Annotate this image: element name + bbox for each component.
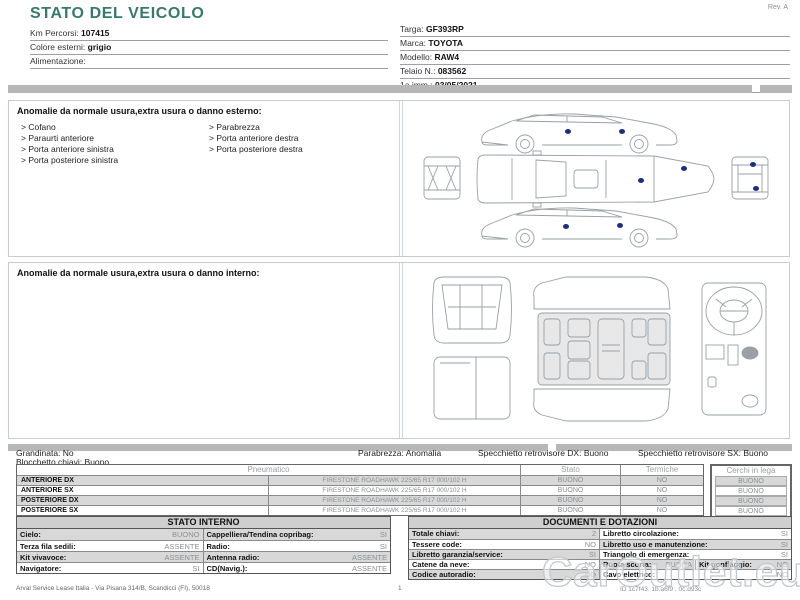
item-label: Libretto circolazione: xyxy=(603,529,679,539)
item-value: SI xyxy=(61,563,199,573)
documenti-title: DOCUMENTI E DOTAZIONI xyxy=(409,517,791,529)
tyre-position: POSTERIORE SX xyxy=(17,506,269,515)
cerchi-value: BUONO xyxy=(715,496,787,506)
item-label: Codice autoradio: xyxy=(412,570,476,579)
tyre-spec: FIRESTONE ROADHAWK 225/65 R17 000/102 H xyxy=(269,476,521,485)
item-label: Navigatore: xyxy=(20,563,61,573)
field-value: RAW4 xyxy=(435,52,460,62)
stato-interno-table: STATO INTERNO Cielo:BUONO Cappelliera/Te… xyxy=(16,516,391,574)
summary-specchietto-dx: Specchietto retrovisore DX: Buono xyxy=(478,448,608,458)
tyre-termiche: NO xyxy=(621,506,703,515)
field-label: Modello: xyxy=(400,52,432,62)
item-value: ASSENTE xyxy=(259,552,387,562)
item-label: Radio: xyxy=(207,541,230,551)
tyre-position: ANTERIORE DX xyxy=(17,476,269,485)
field-targa: Targa: GF393RP xyxy=(400,23,790,37)
footer-page-number: 1 xyxy=(398,585,402,592)
item-value: SI xyxy=(313,529,387,540)
item-value: 2 xyxy=(459,529,596,539)
tyres-table-header: Pneumatico Stato Termiche xyxy=(17,465,703,475)
summary-value: Buono xyxy=(743,448,768,458)
damage-dot xyxy=(565,129,571,134)
field-label: Telaio N.: xyxy=(400,66,435,76)
header-fields-left: Km Percorsi: 107415 Colore esterni: grig… xyxy=(30,27,388,69)
table-row: Terza fila sedili:ASSENTE Radio:SI xyxy=(17,540,390,551)
tyre-termiche: NO xyxy=(621,486,703,495)
item-value: BUONO xyxy=(41,529,200,540)
anomaly-item: Cofano xyxy=(21,122,118,133)
item-label: Totale chiavi: xyxy=(412,529,459,539)
alloy-wheels-box: Cerchi in lega BUONO BUONO BUONO BUONO xyxy=(710,464,792,518)
anomaly-item: Porta posteriore destra xyxy=(209,144,303,155)
summary-value: Anomalia xyxy=(406,448,441,458)
col-header-cerchi: Cerchi in lega xyxy=(712,466,790,476)
tyre-stato: BUONO xyxy=(521,496,621,505)
divider-bar xyxy=(8,444,548,451)
tyre-stato: BUONO xyxy=(521,506,621,515)
tyre-position: POSTERIORE DX xyxy=(17,496,269,505)
item-label: Kit vivavoce: xyxy=(20,552,66,562)
tyre-position: ANTERIORE SX xyxy=(17,486,269,495)
anomaly-item: Porta anteriore sinistra xyxy=(21,144,118,155)
item-label: Libretto garanzia/service: xyxy=(412,550,503,559)
damage-dot xyxy=(750,162,756,167)
item-label: Catene da neve: xyxy=(412,560,470,569)
table-row: POSTERIORE DX FIRESTONE ROADHAWK 225/65 … xyxy=(17,495,703,505)
cerchi-value: BUONO xyxy=(715,506,787,516)
stato-interno-title: STATO INTERNO xyxy=(17,517,390,529)
exterior-car-diagram xyxy=(416,104,776,254)
field-marca: Marca: TOYOTA xyxy=(400,37,790,51)
field-telaio: Telaio N.: 083562 xyxy=(400,65,790,79)
summary-specchietto-sx: Specchietto retrovisore SX: Buono xyxy=(638,448,768,458)
divider-bar xyxy=(8,85,752,93)
field-value: TOYOTA xyxy=(428,38,463,48)
field-value: grigio xyxy=(88,42,112,52)
item-value: ASSENTE xyxy=(66,552,199,562)
damage-dot xyxy=(619,129,625,134)
field-km-percorsi: Km Percorsi: 107415 xyxy=(30,27,388,41)
table-row: ANTERIORE SX FIRESTONE ROADHAWK 225/65 R… xyxy=(17,485,703,495)
vehicle-status-report: STATO DEL VEICOLO Rev. A Km Percorsi: 10… xyxy=(0,0,800,600)
tyres-table: Pneumatico Stato Termiche ANTERIORE DX F… xyxy=(16,464,704,516)
field-value: 083562 xyxy=(438,66,466,76)
interior-diagram-pane xyxy=(402,263,789,438)
item-label: Tessere code: xyxy=(412,540,462,549)
field-label: Marca: xyxy=(400,38,426,48)
damage-dot xyxy=(681,166,687,171)
tyre-spec: FIRESTONE ROADHAWK 225/65 R17 000/102 H xyxy=(269,486,521,495)
summary-label: Specchietto retrovisore SX: xyxy=(638,448,741,458)
col-header-termiche: Termiche xyxy=(621,465,703,475)
item-value: SI xyxy=(679,529,788,539)
field-label: Km Percorsi: xyxy=(30,28,79,38)
tyre-termiche: NO xyxy=(621,476,703,485)
item-label: CD(Navig.): xyxy=(207,563,248,573)
interior-anomalies-list-pane: Anomalie da normale usura,extra usura o … xyxy=(9,263,400,438)
table-row: Cielo:BUONO Cappelliera/Tendina copribag… xyxy=(17,529,390,540)
tyre-spec: FIRESTONE ROADHAWK 225/65 R17 000/102 H xyxy=(269,496,521,505)
exterior-anomalies-section: Anomalie da normale usura,extra usura o … xyxy=(8,100,790,257)
item-label: Terza fila sedili: xyxy=(20,541,76,551)
damage-dot xyxy=(753,186,759,191)
summary-parabrezza: Parabrezza: Anomalia xyxy=(358,448,441,458)
field-label: Colore esterni: xyxy=(30,42,85,52)
exterior-section-title: Anomalie da normale usura,extra usura o … xyxy=(17,106,391,116)
field-modello: Modello: RAW4 xyxy=(400,51,790,65)
exterior-anomalies-left: Cofano Paraurti anteriore Porta anterior… xyxy=(21,122,118,166)
damage-dot xyxy=(563,224,569,229)
footer-company-address: Arval Service Lease Italia - Via Pisana … xyxy=(16,585,210,592)
divider-bar xyxy=(760,85,792,93)
exterior-diagram-pane xyxy=(402,101,789,256)
anomaly-item: Porta anteriore destra xyxy=(209,133,303,144)
damage-dot xyxy=(617,223,623,228)
cerchi-value: BUONO xyxy=(715,486,787,496)
tyre-stato: BUONO xyxy=(521,476,621,485)
item-label: Cielo: xyxy=(20,529,41,540)
header-fields-right: Targa: GF393RP Marca: TOYOTA Modello: RA… xyxy=(400,23,790,93)
table-row: POSTERIORE SX FIRESTONE ROADHAWK 225/65 … xyxy=(17,505,703,515)
cerchi-value: BUONO xyxy=(715,476,787,486)
field-value: GF393RP xyxy=(426,24,464,34)
interior-section-title: Anomalie da normale usura,extra usura o … xyxy=(17,268,391,278)
field-value: 107415 xyxy=(81,28,109,38)
table-row: ANTERIORE DX FIRESTONE ROADHAWK 225/65 R… xyxy=(17,475,703,485)
field-alimentazione: Alimentazione: xyxy=(30,55,388,69)
anomaly-item: Paraurti anteriore xyxy=(21,133,118,144)
exterior-anomalies-list-pane: Anomalie da normale usura,extra usura o … xyxy=(9,101,400,256)
col-header-stato: Stato xyxy=(521,465,621,475)
field-colore-esterni: Colore esterni: grigio xyxy=(30,41,388,55)
tyre-stato: BUONO xyxy=(521,486,621,495)
item-label: Antenna radio: xyxy=(207,552,260,562)
exterior-anomalies-right: Parabrezza Porta anteriore destra Porta … xyxy=(209,122,303,155)
anomaly-item: Porta posteriore sinistra xyxy=(21,155,118,166)
item-label: Cappelliera/Tendina copribag: xyxy=(207,529,314,540)
item-value: ASSENTE xyxy=(76,541,200,551)
item-value: ASSENTE xyxy=(247,563,387,573)
field-label: Targa: xyxy=(400,24,424,34)
car-interior-drawing xyxy=(416,269,776,429)
table-row: Navigatore:SI CD(Navig.):ASSENTE xyxy=(17,562,390,573)
summary-value: Buono xyxy=(584,448,609,458)
field-label: Alimentazione: xyxy=(30,56,86,66)
table-row: Kit vivavoce:ASSENTE Antenna radio:ASSEN… xyxy=(17,551,390,562)
col-header-pneumatico: Pneumatico xyxy=(17,465,521,475)
revision-label: Rev. A xyxy=(768,4,788,11)
summary-label: Parabrezza: xyxy=(358,448,404,458)
interior-anomalies-section: Anomalie da normale usura,extra usura o … xyxy=(8,262,790,439)
table-row: Totale chiavi:2 Libretto circolazione:SI xyxy=(409,529,791,539)
tyre-spec: FIRESTONE ROADHAWK 225/65 R17 000/102 H xyxy=(269,506,521,515)
tyre-termiche: NO xyxy=(621,496,703,505)
page-title: STATO DEL VEICOLO xyxy=(30,5,204,23)
damage-dot xyxy=(638,178,644,183)
summary-label: Specchietto retrovisore DX: xyxy=(478,448,581,458)
item-value: SI xyxy=(230,541,387,551)
interior-car-diagram xyxy=(416,269,776,429)
anomaly-item: Parabrezza xyxy=(209,122,303,133)
damage-dots-layer xyxy=(416,104,776,254)
caroutlet-watermark: CarOutlet.eu xyxy=(542,548,800,596)
